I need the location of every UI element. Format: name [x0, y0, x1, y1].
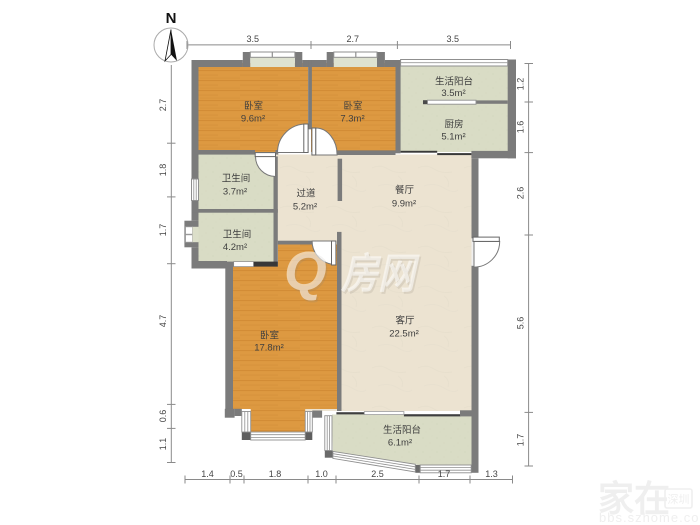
svg-text:9.9m²: 9.9m² [392, 199, 416, 210]
svg-text:22.5m²: 22.5m² [389, 329, 419, 340]
svg-text:餐厅: 餐厅 [395, 184, 415, 196]
svg-text:1.8: 1.8 [269, 469, 282, 479]
svg-text:3.5: 3.5 [447, 34, 460, 44]
svg-text:1.3: 1.3 [485, 469, 498, 479]
svg-text:bbs.szhome.com: bbs.szhome.com [599, 510, 700, 525]
svg-text:1.4: 1.4 [201, 469, 214, 479]
svg-text:0.5: 0.5 [230, 469, 243, 479]
svg-text:5.1m²: 5.1m² [441, 132, 465, 143]
svg-text:1.7: 1.7 [438, 469, 451, 479]
svg-text:3.5: 3.5 [247, 34, 260, 44]
svg-text:9.6m²: 9.6m² [241, 114, 265, 125]
svg-text:生活阳台: 生活阳台 [435, 76, 473, 88]
svg-text:17.8m²: 17.8m² [254, 343, 284, 354]
svg-text:1.7: 1.7 [516, 434, 526, 447]
svg-text:2.7: 2.7 [158, 99, 168, 112]
svg-text:客厅: 客厅 [395, 315, 415, 327]
svg-text:过道: 过道 [296, 188, 316, 200]
svg-text:2.5: 2.5 [371, 469, 384, 479]
svg-text:卧室: 卧室 [343, 100, 362, 112]
svg-text:4.7: 4.7 [158, 315, 168, 328]
svg-text:生活阳台: 生活阳台 [383, 424, 421, 436]
svg-text:1.2: 1.2 [516, 78, 526, 91]
svg-text:2.7: 2.7 [347, 34, 360, 44]
svg-text:0.6: 0.6 [158, 410, 168, 423]
svg-text:卧室: 卧室 [260, 330, 279, 342]
svg-text:厨房: 厨房 [444, 119, 463, 131]
svg-text:卫生间: 卫生间 [222, 173, 251, 185]
svg-text:卫生间: 卫生间 [223, 229, 252, 241]
svg-text:2.6: 2.6 [516, 187, 526, 200]
svg-text:深圳: 深圳 [668, 493, 690, 506]
svg-text:5.6: 5.6 [516, 317, 526, 330]
svg-text:N: N [166, 10, 177, 27]
svg-text:4.2m²: 4.2m² [223, 242, 247, 253]
svg-text:6.1m²: 6.1m² [388, 438, 412, 449]
svg-text:1.7: 1.7 [158, 224, 168, 237]
svg-text:1.6: 1.6 [516, 121, 526, 134]
svg-text:3.7m²: 3.7m² [223, 187, 247, 198]
svg-text:Q: Q [284, 240, 327, 302]
svg-text:1.1: 1.1 [158, 438, 168, 451]
svg-text:7.3m²: 7.3m² [340, 114, 364, 125]
svg-text:1.8: 1.8 [158, 164, 168, 177]
svg-text:房网: 房网 [340, 250, 420, 297]
svg-text:1.0: 1.0 [315, 469, 328, 479]
svg-text:3.5m²: 3.5m² [441, 88, 465, 99]
svg-text:5.2m²: 5.2m² [293, 202, 317, 213]
svg-text:卧室: 卧室 [244, 100, 263, 112]
